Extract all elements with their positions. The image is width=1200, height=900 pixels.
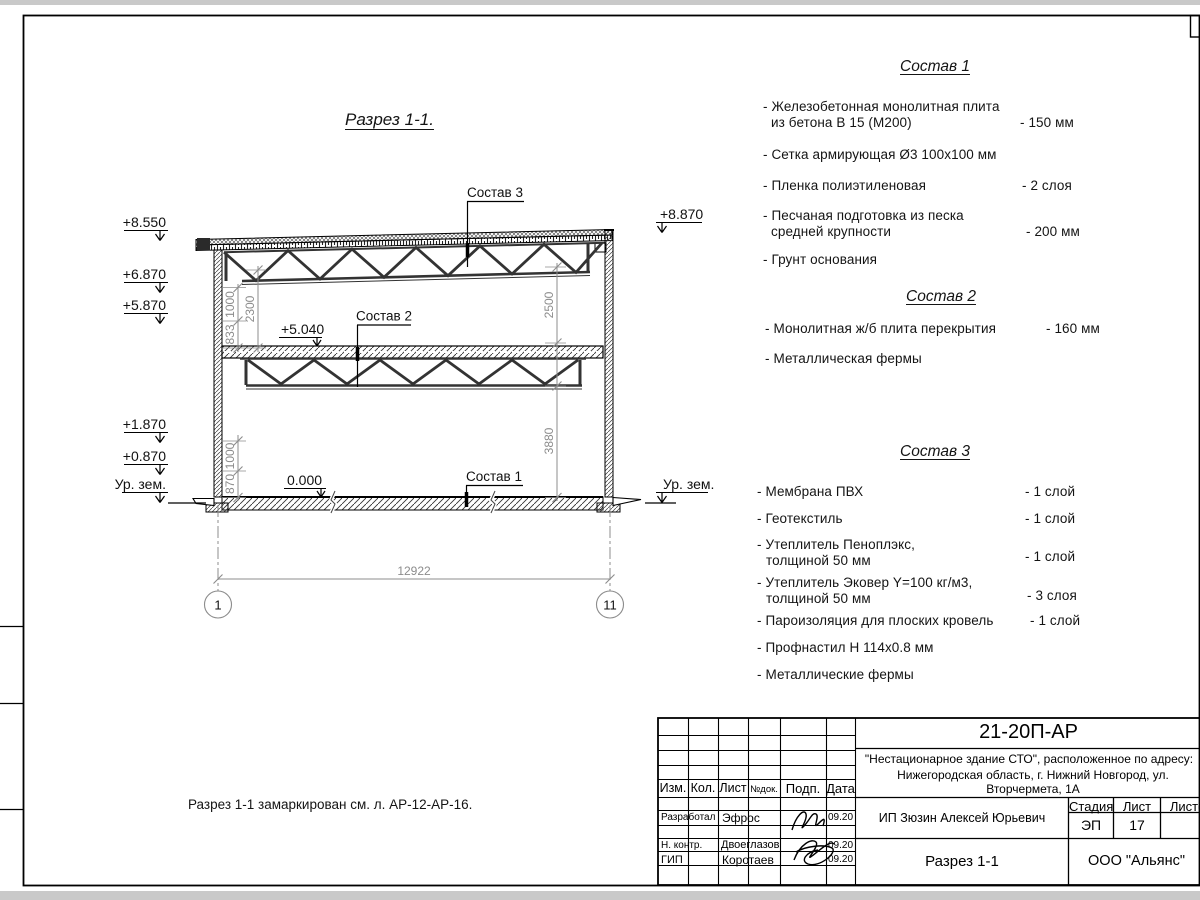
date-razrabotal: 09.20 xyxy=(826,812,855,823)
dim-label: 3880 xyxy=(542,427,556,454)
date-nkontr: 09.20 xyxy=(826,840,855,851)
name-gip: Коротаев xyxy=(722,853,774,867)
composition-value: - 150 мм xyxy=(1020,115,1074,130)
composition-value: - 1 слой xyxy=(1030,613,1080,628)
composition1-title: Состав 1 xyxy=(870,58,1000,76)
date-gip: 09.20 xyxy=(826,854,855,865)
company-name: ООО "Альянс" xyxy=(1069,853,1200,869)
elevation-mark xyxy=(124,231,168,241)
composition-item: - Утеплитель Пеноплэкс, xyxy=(757,537,915,552)
elevation-mark xyxy=(124,314,168,324)
elevation-marks-right xyxy=(656,223,708,503)
composition-item: - Утеплитель Эковер Y=100 кг/м3, xyxy=(757,575,972,590)
elevation-label: +8.870 xyxy=(660,206,703,222)
ground-level-label: Ур. зем. xyxy=(115,476,166,492)
elevation-label: +8.550 xyxy=(123,214,166,230)
role-gip: ГИП xyxy=(661,854,683,866)
composition-item: - Металлическая фермы xyxy=(765,351,922,366)
composition-item: толщиной 50 мм xyxy=(766,591,871,606)
leader-label: Состав 3 xyxy=(467,185,523,200)
composition-item: - Пленка полиэтиленовая xyxy=(763,178,926,193)
floor-truss xyxy=(240,359,586,389)
column-data: Дата xyxy=(826,781,855,796)
drawing-sheet: +8.550 +6.870 +5.870 +1.870 +0.870 Ур. з… xyxy=(0,0,1200,900)
dim-label: 1000 xyxy=(223,442,237,469)
ground-level-label: Ур. зем. xyxy=(663,476,714,492)
dim-label: 870 xyxy=(223,474,237,494)
grid-axis-label: 11 xyxy=(603,598,617,613)
composition-value: - 1 слой xyxy=(1025,549,1075,564)
section-view xyxy=(168,230,676,514)
project-description-line1: "Нестационарное здание СТО", расположенн… xyxy=(858,752,1200,766)
ground-level-mark xyxy=(122,493,168,503)
elevation-mark xyxy=(124,433,168,443)
composition-value: - 200 мм xyxy=(1026,224,1080,239)
leader-label: Состав 1 xyxy=(466,469,522,484)
composition-item: - Грунт основания xyxy=(763,252,877,267)
composition-item: - Профнастил Н 114х0.8 мм xyxy=(757,640,934,655)
elevation-mark xyxy=(124,465,168,475)
right-wall xyxy=(605,230,613,497)
roof-fascia xyxy=(197,238,210,251)
leader-label: Состав 2 xyxy=(356,309,412,324)
reference-note: Разрез 1-1 замаркирован см. л. АР-12-АР-… xyxy=(188,797,472,812)
composition-item: - Мембрана ПВХ xyxy=(757,484,863,499)
left-wall xyxy=(214,250,222,497)
client-name: ИП Зюзин Алексей Юрьевич xyxy=(857,811,1067,825)
dim-label: 1000 xyxy=(223,291,237,318)
composition-item: - Железобетонная монолитная плита xyxy=(763,99,1000,114)
composition-item: - Сетка армирующая Ø3 100х100 мм xyxy=(763,147,997,162)
column-ndok: №док. xyxy=(748,784,780,795)
roof-truss xyxy=(224,243,606,285)
elevation-label: +1.870 xyxy=(123,416,166,432)
dim-label: 2300 xyxy=(243,295,257,322)
composition-item: средней крупности xyxy=(771,224,891,239)
column-list: Лист xyxy=(718,781,748,795)
level-label: +5.040 xyxy=(281,321,324,337)
elevation-label: +5.870 xyxy=(123,297,166,313)
elevation-mark xyxy=(656,223,702,233)
dim-label: 2500 xyxy=(542,291,556,318)
name-nkontr: Двоеглазов xyxy=(721,839,779,851)
composition-item: - Монолитная ж/б плита перекрытия xyxy=(765,321,996,336)
composition-item: - Геотекстиль xyxy=(757,511,843,526)
stage-label: Стадия xyxy=(1069,799,1113,814)
sheet-label: Лист xyxy=(1114,799,1160,814)
document-code: 21-20П-АР xyxy=(857,721,1200,744)
role-razrabotal: Разработал xyxy=(661,812,715,823)
sheet-number: 17 xyxy=(1114,817,1160,833)
composition-value: - 3 слоя xyxy=(1027,588,1077,603)
composition-item: - Металлические фермы xyxy=(757,667,914,682)
sheets-label: Листов xyxy=(1161,799,1200,814)
role-nkontr: Н. контр. xyxy=(661,840,702,851)
composition-item: толщиной 50 мм xyxy=(766,553,871,568)
composition-item: - Пароизоляция для плоских кровель xyxy=(757,613,993,628)
grid-axis-label: 1 xyxy=(214,598,221,613)
level-zero-mark: 0.000 xyxy=(284,472,326,497)
leader-sostav3: Состав 3 xyxy=(467,185,524,267)
stage-value: ЭП xyxy=(1069,817,1113,833)
column-podp: Подп. xyxy=(780,781,826,796)
elevation-label: +6.870 xyxy=(123,266,166,282)
column-kol: Кол. xyxy=(688,781,718,795)
composition-item: - Песчаная подготовка из песка xyxy=(763,208,964,223)
signature-icon xyxy=(792,812,824,830)
composition2-title: Состав 2 xyxy=(876,288,1006,306)
dim-label: 833 xyxy=(223,324,237,344)
section-view-title: Разрез 1-1. xyxy=(345,110,434,130)
column-izm: Изм. xyxy=(658,781,688,795)
composition-value: - 1 слой xyxy=(1025,484,1075,499)
level-label: 0.000 xyxy=(287,472,322,488)
elevation-label: +0.870 xyxy=(123,448,166,464)
composition-item: из бетона В 15 (М200) xyxy=(771,115,912,130)
name-razrabotal: Эфрос xyxy=(722,811,760,825)
dim-label: 12922 xyxy=(397,564,431,578)
ground-level-mark xyxy=(656,493,708,503)
project-description-line2: Нижегородская область, г. Нижний Новгоро… xyxy=(858,768,1200,796)
composition-value: - 2 слоя xyxy=(1022,178,1072,193)
elevation-mark xyxy=(124,283,168,293)
ground-slab xyxy=(222,497,603,510)
composition-value: - 1 слой xyxy=(1025,511,1075,526)
mid-floor-slab xyxy=(222,346,603,358)
composition-value: - 160 мм xyxy=(1046,321,1100,336)
level-5040-mark: +5.040 xyxy=(279,321,324,346)
composition3-title: Состав 3 xyxy=(870,443,1000,461)
drawing-name: Разрез 1-1 xyxy=(857,853,1067,870)
